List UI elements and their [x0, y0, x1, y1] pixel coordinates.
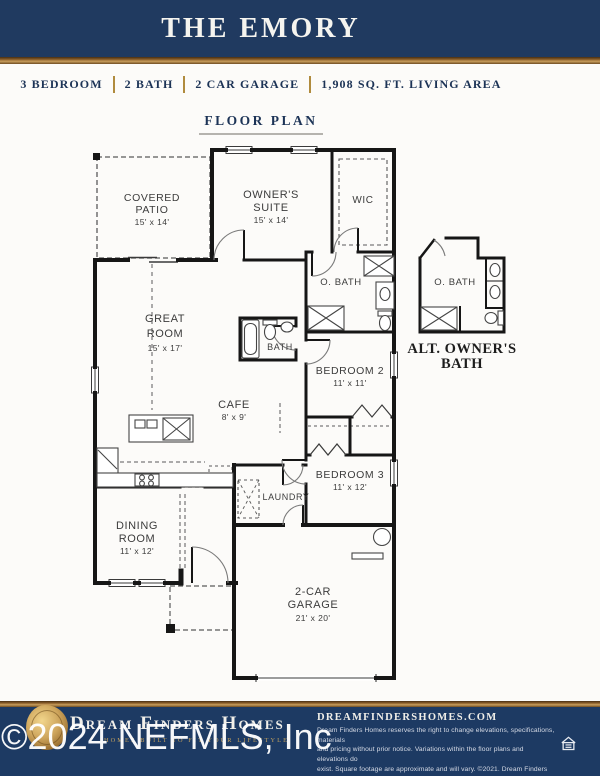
cafe-dims: 8' x 9': [222, 412, 246, 422]
covered-patio-dims: 15' x 14': [135, 217, 170, 227]
garage-label: 2-CAR: [295, 586, 331, 598]
disclaimer-line: exist. Square footage are approximate an…: [317, 765, 555, 776]
bedroom-2-label: BEDROOM 2: [316, 365, 384, 377]
room-labels: COVERED PATIO 15' x 14' OWNER'S SUITE 15…: [116, 189, 517, 623]
bedroom-3-dims: 11' x 12': [333, 482, 367, 492]
owners-bath-label: O. BATH: [320, 277, 362, 288]
disclaimer-line: and pricing without prior notice. Variat…: [317, 745, 555, 764]
dining-room-dims: 11' x 12': [120, 546, 154, 556]
great-room-dims: 15' x 17': [148, 343, 183, 353]
alt-bath-caption: BATH: [441, 356, 483, 372]
disclaimer-line: Dream Finders Homes reserves the right t…: [317, 726, 555, 745]
owners-suite-label: OWNER'S: [243, 189, 299, 201]
covered-patio-label: COVERED: [124, 192, 180, 204]
website-text: DREAMFINDERSHOMES.COM: [317, 712, 555, 723]
mls-watermark: ©2024 NEFMLS, Inc: [1, 716, 332, 758]
bedroom-3-label: BEDROOM 3: [316, 469, 384, 481]
laundry-label: LAUNDRY: [262, 492, 309, 502]
great-room-label: GREAT: [145, 313, 185, 325]
cafe-label: CAFE: [218, 399, 250, 411]
garage-label: GARAGE: [288, 599, 339, 611]
equal-housing-icon: [561, 736, 576, 756]
garage-dims: 21' x 20': [296, 613, 331, 623]
flyer-page: THE EMORY 3 BEDROOM 2 BATH 2 CAR GARAGE …: [0, 0, 600, 776]
hall-bath-label: BATH: [267, 342, 293, 352]
great-room-label: ROOM: [147, 328, 184, 340]
owners-suite-label: SUITE: [253, 202, 288, 214]
footer-info-block: DREAMFINDERSHOMES.COM Dream Finders Home…: [317, 712, 555, 776]
fixtures-layer: [97, 256, 504, 559]
dining-room-label: DINING: [116, 520, 158, 532]
alt-bath-caption: ALT. OWNER'S: [407, 341, 516, 357]
bedroom-2-dims: 11' x 11': [333, 378, 366, 388]
wic-label: WIC: [352, 195, 373, 206]
dashed-lines-layer: [97, 157, 392, 630]
disclaimer-text: Dream Finders Homes reserves the right t…: [317, 726, 555, 776]
floor-plan-drawing: COVERED PATIO 15' x 14' OWNER'S SUITE 15…: [0, 0, 600, 776]
alt-owners-bath-label: O. BATH: [434, 277, 476, 288]
dining-room-label: ROOM: [119, 533, 156, 545]
owners-suite-dims: 15' x 14': [254, 215, 289, 225]
covered-patio-label: PATIO: [136, 204, 169, 216]
